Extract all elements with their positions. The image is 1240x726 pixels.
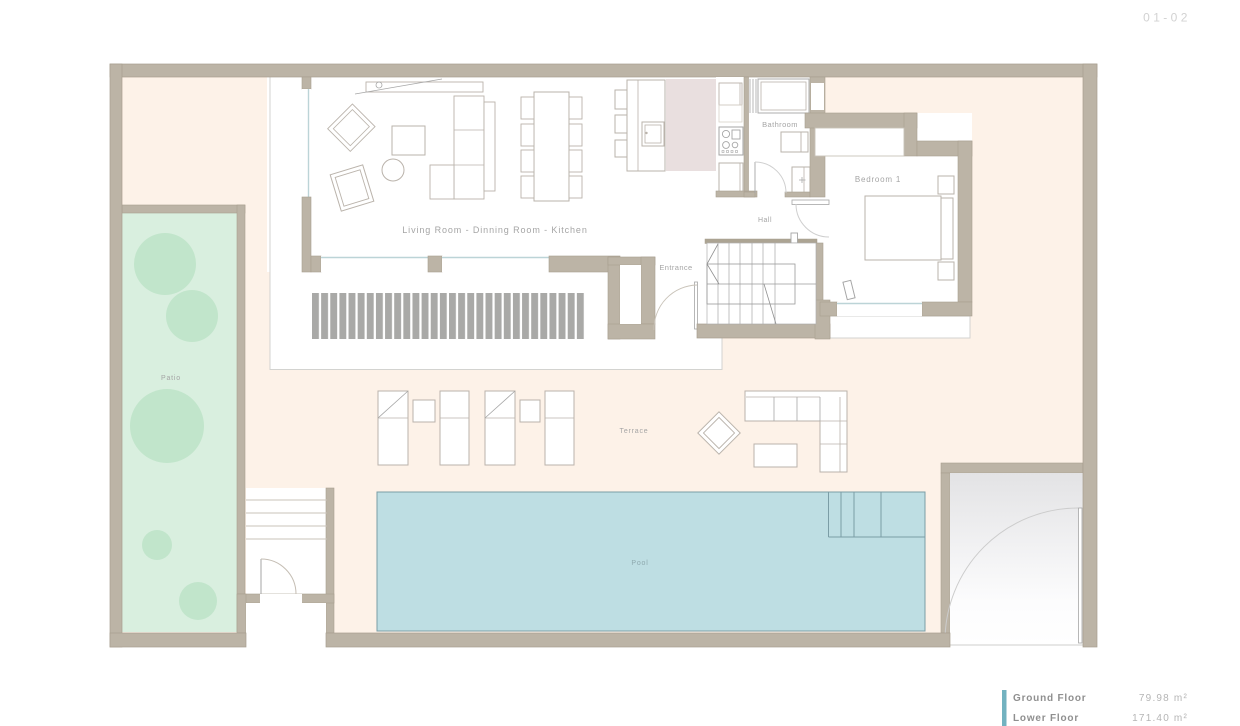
svg-text:Patio: Patio xyxy=(161,375,181,382)
svg-text:Ground Floor: Ground Floor xyxy=(1013,693,1086,704)
svg-text:Hall: Hall xyxy=(758,217,772,224)
svg-text:Bathroom: Bathroom xyxy=(762,120,798,129)
svg-text:Entrance: Entrance xyxy=(659,263,692,272)
svg-text:01-02: 01-02 xyxy=(1143,11,1191,25)
svg-text:Lower Floor: Lower Floor xyxy=(1013,713,1079,724)
svg-text:Terrace: Terrace xyxy=(620,428,649,435)
svg-text:171.40 m²: 171.40 m² xyxy=(1132,713,1188,724)
svg-text:Living Room - Dinning Room - K: Living Room - Dinning Room - Kitchen xyxy=(402,225,587,235)
svg-text:Bedroom 1: Bedroom 1 xyxy=(855,175,901,184)
svg-text:79.98 m²: 79.98 m² xyxy=(1139,693,1188,704)
svg-text:Pool: Pool xyxy=(631,560,648,567)
